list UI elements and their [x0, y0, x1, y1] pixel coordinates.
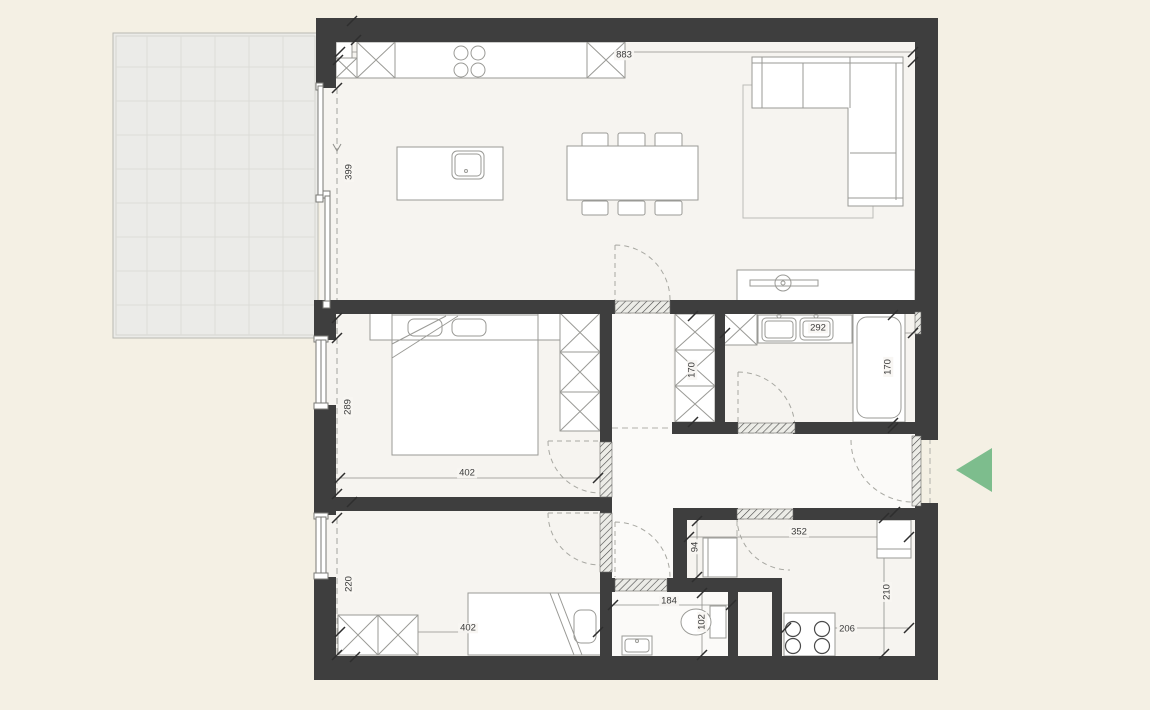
dim-label-storage-height: 210 — [882, 582, 892, 602]
wardrobe — [560, 313, 600, 431]
dim-label-wc-height: 102 — [697, 612, 707, 632]
dim-label-hall-wardrobe-height: 170 — [687, 360, 697, 380]
dim-label-wc-width: 184 — [659, 596, 679, 606]
dim-label-living-width: 883 — [614, 50, 634, 60]
dim-label-bedroom2-height: 220 — [344, 574, 354, 594]
dim-label-storage-width: 352 — [789, 527, 809, 537]
kitchen-island — [397, 147, 503, 200]
kitchen-counter — [336, 42, 625, 78]
dining-table — [567, 133, 698, 215]
floor-plan-drawing — [0, 0, 1150, 710]
bathtub — [853, 313, 905, 422]
tv-bench — [737, 270, 915, 302]
sink-icon — [622, 636, 652, 655]
dim-label-bathroom-height: 170 — [883, 357, 893, 377]
pillow — [574, 610, 596, 643]
pillow — [452, 319, 486, 336]
window-bedroom1 — [314, 336, 328, 409]
dim-label-bedroom2-width: 402 — [458, 623, 478, 633]
dim-label-kitchenette-width: 206 — [837, 624, 857, 634]
kitchenette-cooktop — [784, 613, 835, 656]
dim-label-bedroom1-width: 402 — [457, 468, 477, 478]
entrance-arrow-icon — [956, 448, 992, 492]
terrace — [113, 33, 318, 338]
dim-label-bathroom-width: 292 — [808, 323, 828, 333]
vanity-counter — [758, 315, 852, 343]
floor-plan: 883 399 289 402 220 402 170 292 170 352 … — [0, 0, 1150, 710]
dim-label-living-height: 399 — [344, 162, 354, 182]
window-bedroom2 — [314, 513, 328, 579]
dim-label-niche-height: 94 — [690, 540, 700, 555]
entrance-door-leaf — [912, 436, 921, 506]
dim-label-bedroom1-height: 289 — [343, 397, 353, 417]
corner-cabinet — [877, 520, 911, 558]
wardrobe — [338, 615, 418, 655]
